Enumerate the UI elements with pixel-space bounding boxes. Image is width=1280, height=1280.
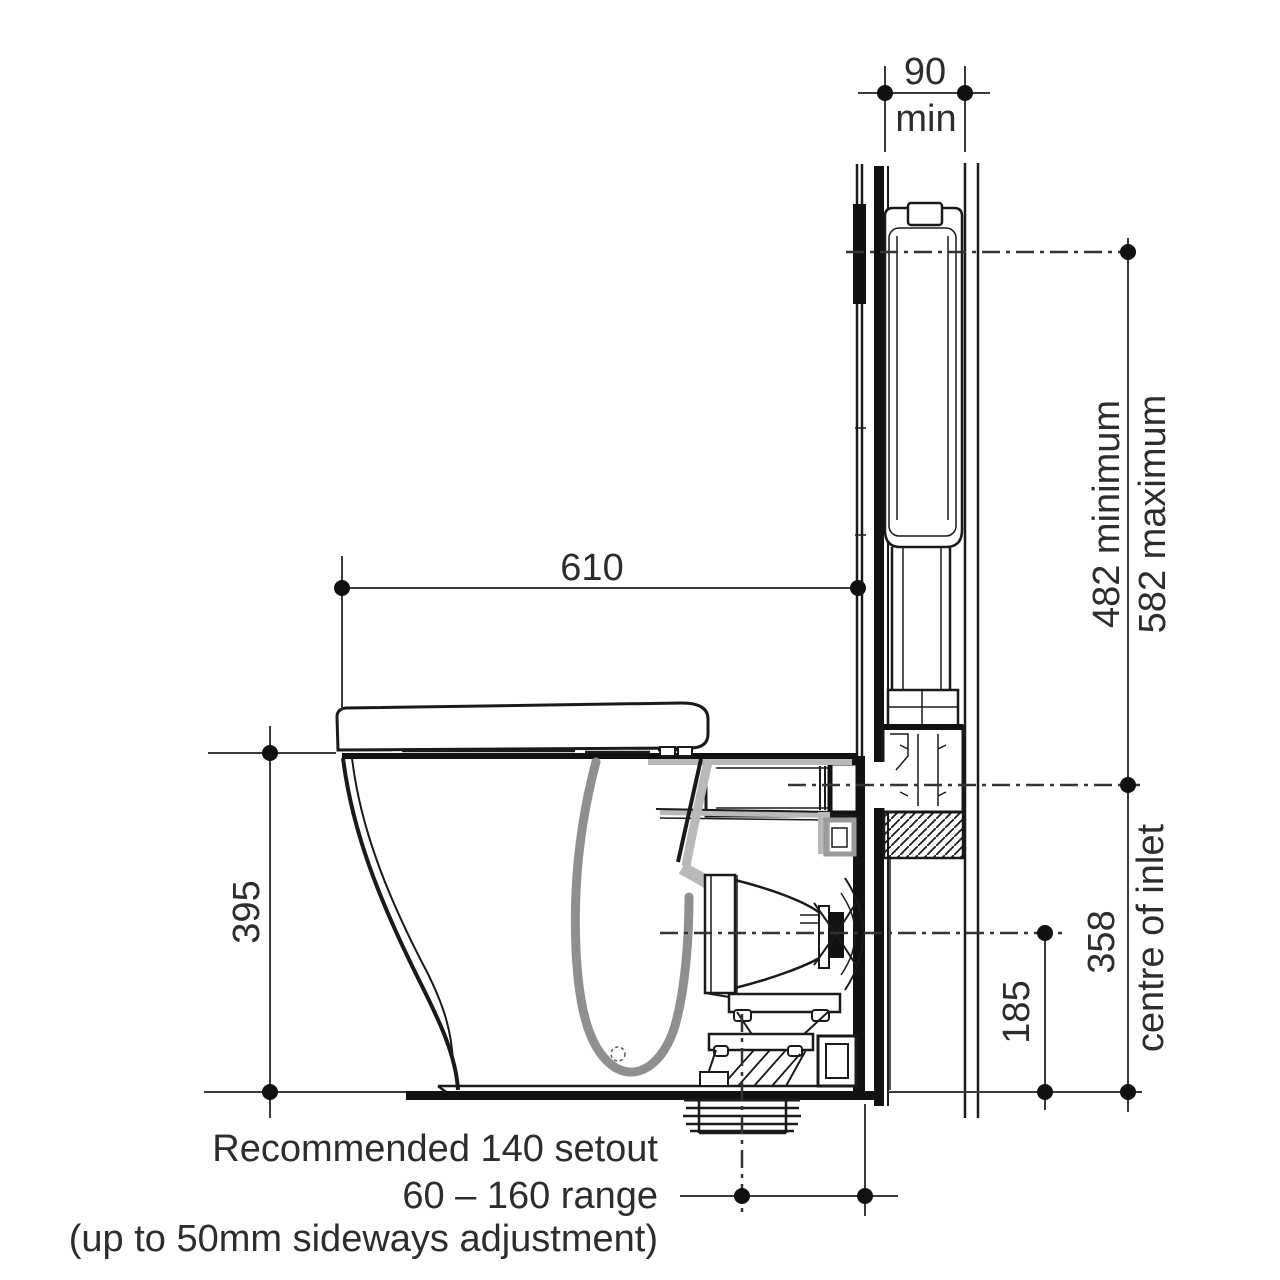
- dim-dot: [734, 1188, 750, 1204]
- inlet-seal: [830, 763, 858, 813]
- seat-outline: [337, 703, 708, 750]
- note-line-3: (up to 50mm sideways adjustment): [69, 1218, 658, 1260]
- dim-outlet-185: 185: [996, 925, 1053, 1110]
- dim-482-min: 482 minimum: [1086, 400, 1128, 628]
- wall-board-section: [874, 166, 884, 1106]
- dim-185-value: 185: [996, 980, 1038, 1043]
- flush-connector: [888, 690, 958, 726]
- dim-dot: [1120, 1084, 1136, 1100]
- dim-dot: [857, 1188, 873, 1204]
- dim-395-value: 395: [226, 880, 268, 943]
- dim-dot: [1037, 925, 1053, 941]
- note-line-1: Recommended 140 setout: [212, 1128, 658, 1170]
- dim-dot: [957, 85, 973, 101]
- seat-hinge-tab: [660, 747, 675, 756]
- note-line-2: 60 – 160 range: [402, 1175, 658, 1217]
- floor-section: [406, 1091, 884, 1100]
- outlet-flange-plate: [819, 906, 829, 968]
- seat-bottom-segments: [338, 750, 688, 752]
- upper-fixing-bracket-inner: [832, 828, 847, 847]
- setout-notes: Recommended 140 setout 60 – 160 range (u…: [69, 1128, 659, 1260]
- dim-setout: [680, 1104, 898, 1216]
- floor: [204, 1091, 1142, 1100]
- dim-610-value: 610: [560, 547, 623, 589]
- mounting-hatch-block: [884, 812, 963, 858]
- inlet-valve-box: [883, 726, 963, 812]
- dim-projection-610: 610: [334, 547, 866, 710]
- dim-dot: [1120, 244, 1136, 260]
- dim-inlet-heights: 482 minimum 582 maximum 358 centre of in…: [1081, 238, 1174, 1112]
- dim-height-395: 395: [208, 726, 336, 1118]
- dim-dot: [850, 580, 866, 596]
- flush-pipe-inner: [903, 547, 941, 690]
- dim-90-qualifier: min: [895, 98, 956, 140]
- dim-cavity-90-min: 90 min: [858, 51, 990, 152]
- cistern-button: [908, 203, 942, 225]
- dim-dot: [262, 745, 278, 761]
- concealed-cistern: [883, 203, 963, 1090]
- bowl-outlet-mark: [611, 1047, 625, 1061]
- dim-582-max: 582 maximum: [1132, 395, 1174, 634]
- seat-hinge-tab-2: [678, 747, 692, 756]
- flush-button-panel: [853, 204, 866, 304]
- trap-outlet-assembly: [698, 875, 863, 1086]
- dim-dot: [1037, 1084, 1053, 1100]
- dim-centre-of-inlet-label: centre of inlet: [1130, 823, 1172, 1052]
- toilet-installation-diagram: 90 min 610 395 482 minimum 582 maximum 3…: [0, 0, 1280, 1280]
- dim-dot: [877, 85, 893, 101]
- dim-dot: [334, 580, 350, 596]
- outlet-bracket: [700, 1072, 728, 1086]
- duct-floor-edge-2: [660, 818, 828, 820]
- dim-dot: [1120, 777, 1136, 793]
- technical-drawing: 90 min 610 395 482 minimum 582 maximum 3…: [0, 0, 1280, 1280]
- dim-90-value: 90: [904, 51, 946, 93]
- upper-fixing-bracket: [826, 820, 854, 854]
- outlet-stub: [800, 915, 820, 923]
- dim-358-value: 358: [1081, 910, 1123, 973]
- toilet-seat: [337, 703, 708, 756]
- dim-dot: [262, 1084, 278, 1100]
